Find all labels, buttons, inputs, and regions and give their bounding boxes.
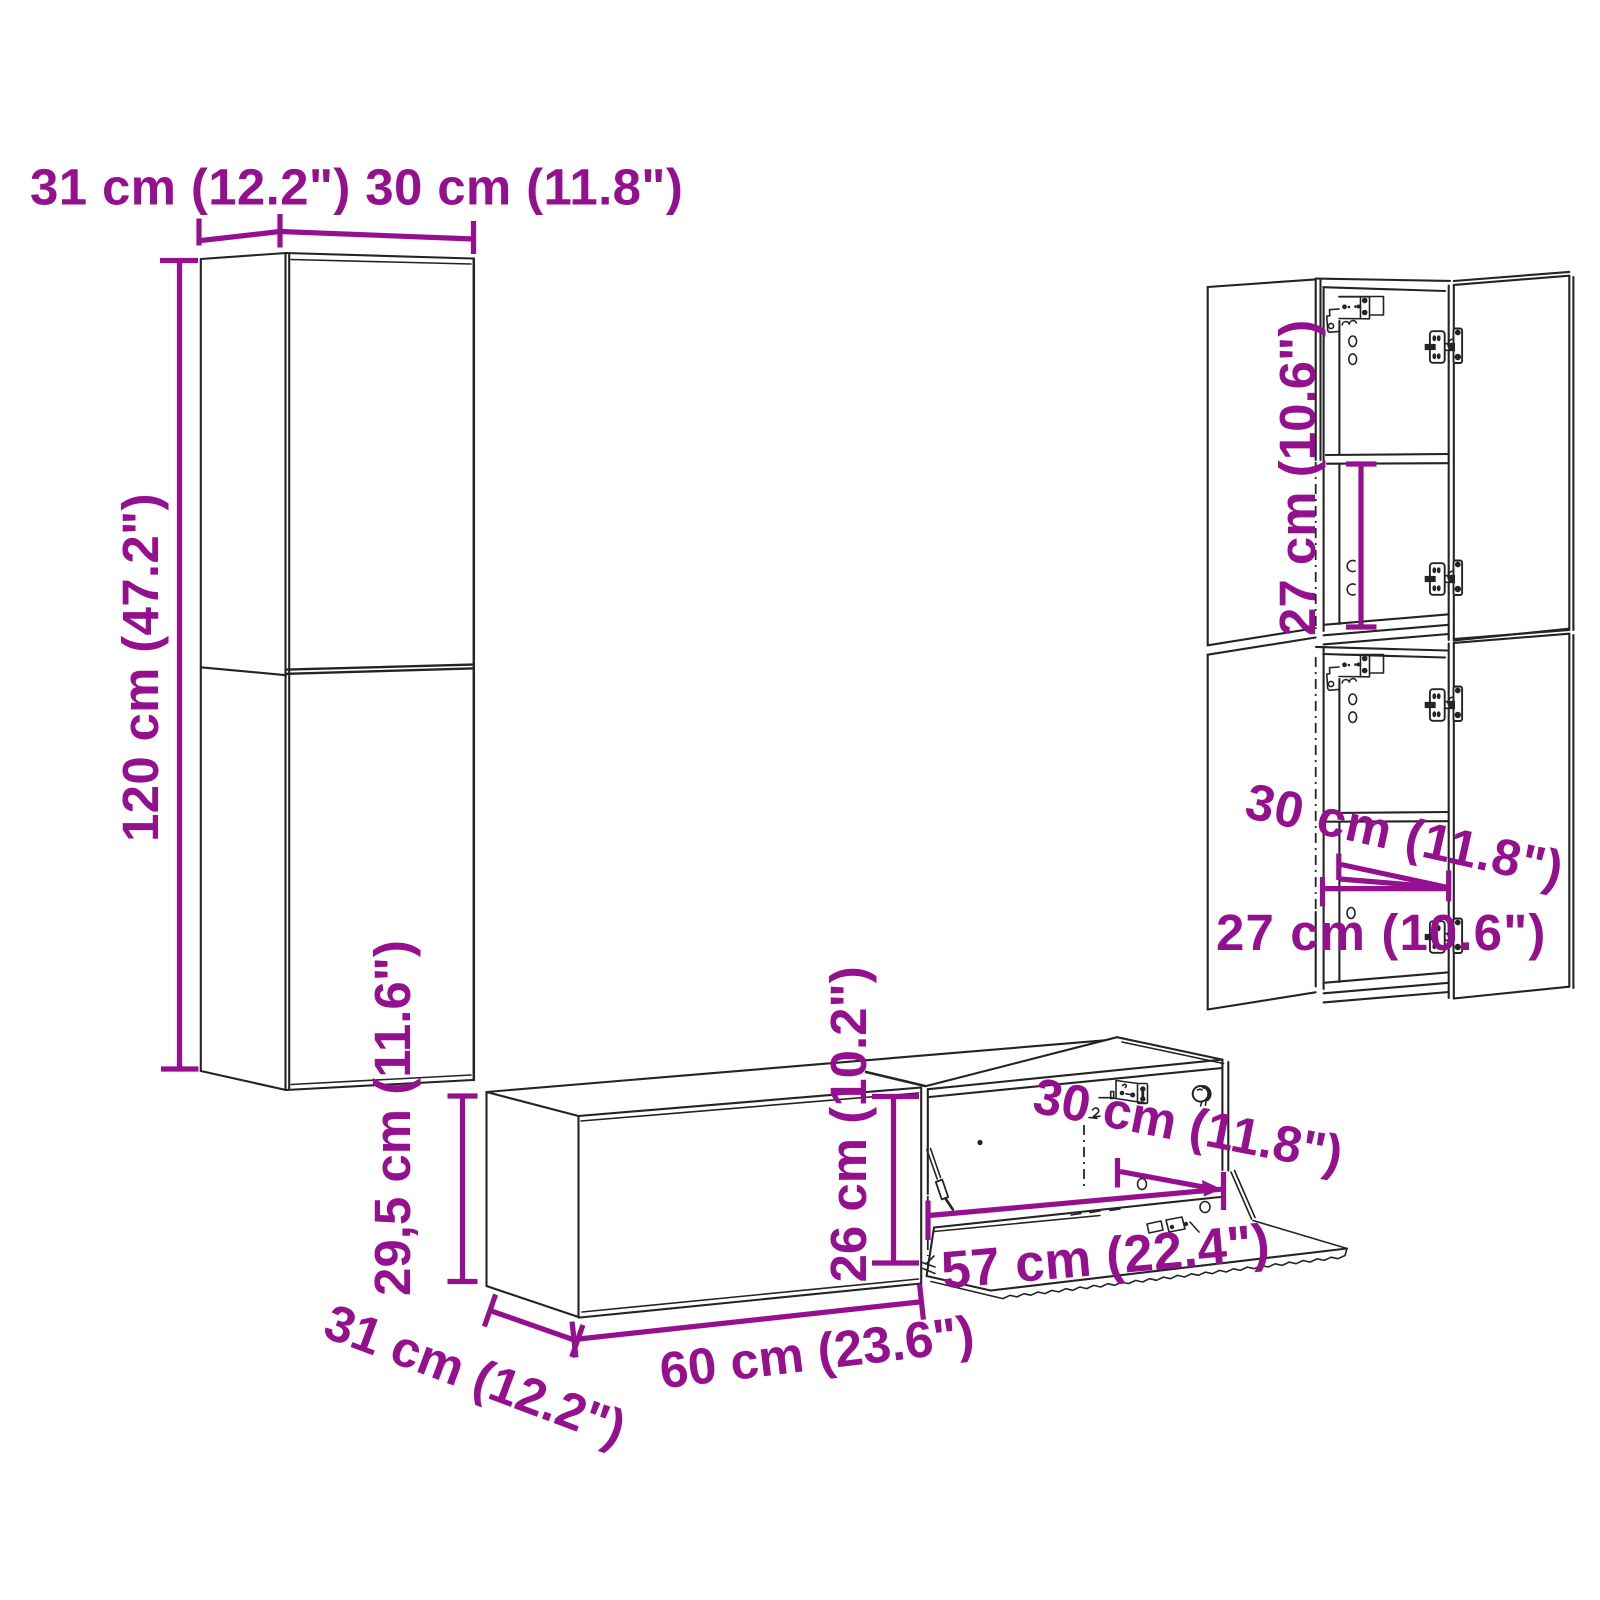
svg-text:26 cm (10.2"): 26 cm (10.2") [820, 966, 877, 1282]
svg-text:27 cm (10.6"): 27 cm (10.6") [1216, 904, 1547, 961]
svg-text:27 cm (10.6"): 27 cm (10.6") [1269, 320, 1326, 636]
svg-text:120 cm (47.2"): 120 cm (47.2") [112, 493, 169, 842]
svg-text:31 cm (12.2") 30 cm (11.8"): 31 cm (12.2") 30 cm (11.8") [30, 159, 683, 216]
svg-text:29,5 cm (11.6"): 29,5 cm (11.6") [364, 940, 421, 1296]
